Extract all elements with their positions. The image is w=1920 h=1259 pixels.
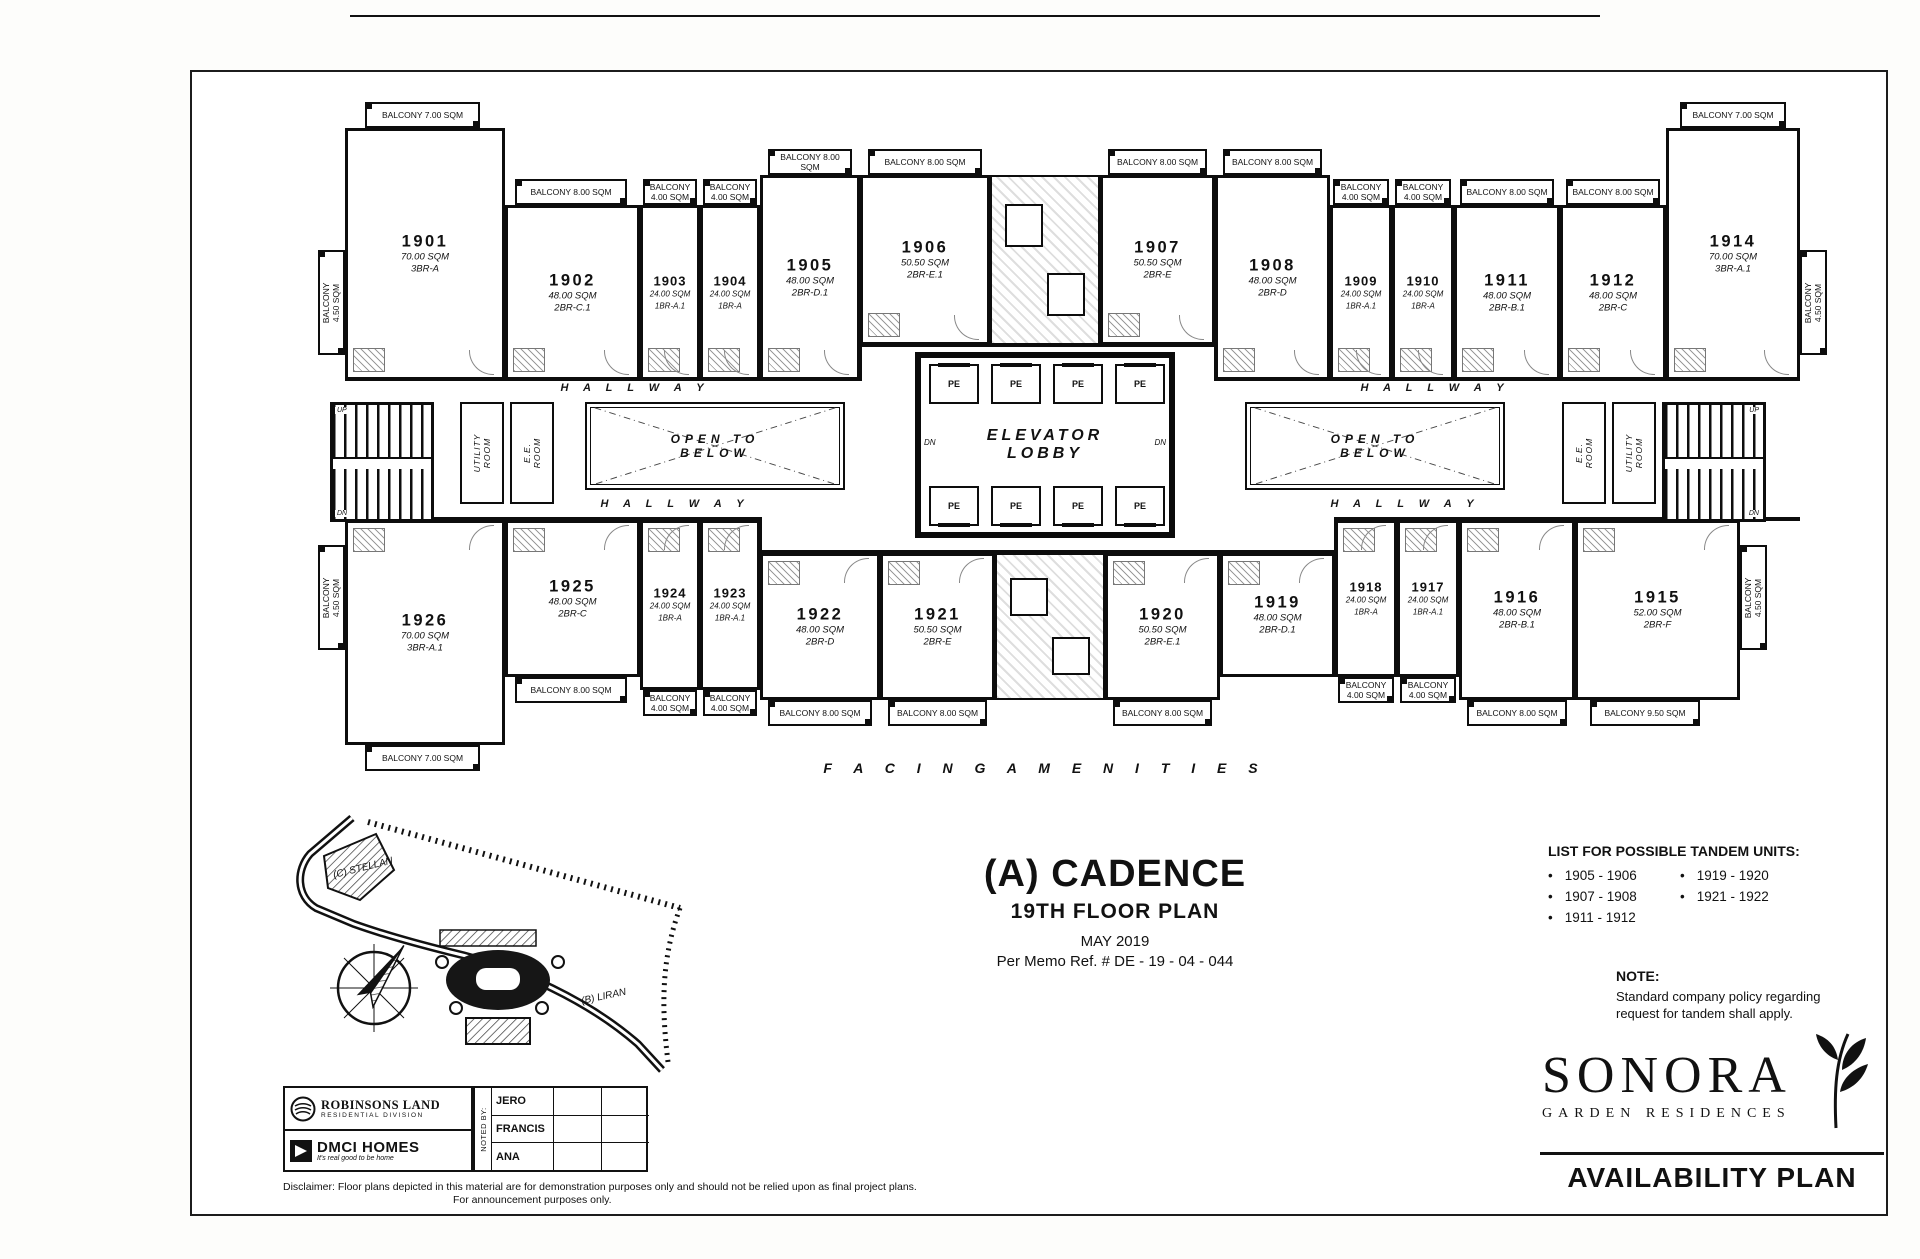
balcony-1917: BALCONY 4.00 SQM: [1400, 677, 1456, 703]
unit-1922: 192248.00 SQM2BR-D: [760, 553, 880, 700]
unit-type: 2BR-E: [883, 636, 992, 648]
unit-area: 48.00 SQM: [1218, 275, 1327, 287]
unit-1914: 191470.00 SQM3BR-A.1: [1666, 128, 1800, 380]
unit-number: 1907: [1103, 239, 1212, 258]
corridor-wall: [345, 377, 860, 381]
balcony-label: BALCONY 4.00 SQM: [706, 693, 754, 713]
balcony-label: BALCONY 4.50 SQM: [322, 282, 342, 322]
note-block: NOTE: Standard company policy regarding …: [1616, 968, 1866, 1022]
unit-1909: 190924.00 SQM1BR-A.1: [1330, 205, 1392, 380]
balcony-label: BALCONY 7.00 SQM: [382, 753, 463, 763]
unit-number: 1917: [1400, 579, 1456, 594]
unit-type: 2BR-D: [763, 636, 877, 648]
corridor-wall: [1215, 377, 1800, 381]
amenity-area: [436, 930, 564, 1044]
balcony-1905: BALCONY 8.00 SQM: [768, 149, 852, 175]
unit-number: 1923: [703, 586, 757, 601]
service-shaft-core: [990, 175, 1100, 345]
disclaimer: Disclaimer: Floor plans depicted in this…: [283, 1181, 943, 1207]
stair-landing: [333, 457, 431, 469]
note-text: Standard company policy regarding reques…: [1616, 988, 1841, 1022]
unit-number: 1909: [1333, 273, 1389, 288]
elevator-cab: PE: [991, 364, 1041, 404]
elevator-cab: PE: [929, 364, 979, 404]
balcony-1909: BALCONY 4.00 SQM: [1333, 179, 1389, 205]
pe-label: PE: [1072, 501, 1084, 511]
unit-area: 48.00 SQM: [1457, 290, 1557, 302]
balcony-label: BALCONY 8.00 SQM: [1232, 157, 1313, 167]
balcony-1903: BALCONY 4.00 SQM: [643, 179, 697, 205]
robinsons-subtitle: RESIDENTIAL DIVISION: [321, 1112, 440, 1119]
balcony-label: BALCONY 8.00 SQM: [1476, 708, 1557, 718]
balcony-1926-side: BALCONY 4.50 SQM: [318, 545, 345, 650]
unit-number: 1920: [1108, 605, 1217, 624]
pe-label: PE: [1010, 501, 1022, 511]
utility-room-label: UTILITY ROOM: [1624, 433, 1644, 473]
unit-type: 1BR-A.1: [1333, 300, 1389, 312]
unit-area: 48.00 SQM: [763, 275, 857, 287]
unit-1926: 192670.00 SQM3BR-A.1: [345, 520, 505, 745]
balcony-label: BALCONY 7.00 SQM: [382, 110, 463, 120]
unit-number: 1922: [763, 605, 877, 624]
hallway-label: H A L L W A Y: [1300, 382, 1570, 394]
unit-type: 2BR-C: [1563, 302, 1663, 314]
unit-number: 1914: [1669, 233, 1797, 252]
robinsons-name: ROBINSONS LAND: [321, 1099, 440, 1112]
unit-1908: 190848.00 SQM2BR-D: [1215, 175, 1330, 380]
unit-1921: 192150.50 SQM2BR-E: [880, 553, 995, 700]
balcony-1924: BALCONY 4.00 SQM: [643, 690, 697, 716]
unit-1916: 191648.00 SQM2BR-B.1: [1459, 520, 1575, 700]
elevator-cab: PE: [1053, 364, 1103, 404]
liran-label: (B) LIRAN: [580, 987, 628, 1007]
noted-name: FRANCIS: [492, 1116, 554, 1143]
balcony-label: BALCONY 8.00 SQM: [779, 708, 860, 718]
unit-1904: 190424.00 SQM1BR-A: [700, 205, 760, 380]
unit-1924: 192424.00 SQM1BR-A: [640, 520, 700, 690]
unit-area: 48.00 SQM: [508, 596, 637, 608]
balcony-label: BALCONY 8.00 SQM: [1572, 187, 1653, 197]
ee-room-left: E.E. ROOM: [510, 402, 554, 504]
hallway-label: H A L L W A Y: [1270, 498, 1540, 510]
title-block: (A) CADENCE 19TH FLOOR PLAN MAY 2019 Per…: [900, 853, 1330, 970]
balcony-label: BALCONY 9.50 SQM: [1604, 708, 1685, 718]
signature-cell: [554, 1143, 602, 1170]
unit-type: 2BR-B.1: [1462, 620, 1572, 632]
scan-artifact-line: [350, 15, 1600, 17]
noted-by-table: NOTED BY: JERO FRANCIS ANA: [473, 1086, 648, 1172]
unit-type: 2BR-D.1: [763, 287, 857, 299]
balcony-label: BALCONY 8.00 SQM: [897, 708, 978, 718]
unit-area: 52.00 SQM: [1578, 608, 1737, 620]
open-to-below-left: OPEN TO BELOW: [585, 402, 845, 490]
utility-room-right: UTILITY ROOM: [1612, 402, 1656, 504]
unit-type: 2BR-B.1: [1457, 302, 1557, 314]
tandem-pair: 1907 - 1908: [1548, 886, 1680, 907]
balcony-1918: BALCONY 4.00 SQM: [1338, 677, 1394, 703]
unit-type: 2BR-F: [1578, 620, 1737, 632]
balcony-label: BALCONY 4.00 SQM: [1336, 182, 1386, 202]
unit-1910: 191024.00 SQM1BR-A: [1392, 205, 1454, 380]
table-row: ANA: [492, 1142, 649, 1170]
plan-memo-ref: Per Memo Ref. # DE - 19 - 04 - 044: [900, 953, 1330, 970]
open-to-below-label: OPEN TO BELOW: [1247, 404, 1503, 488]
ee-room-label: E.E. ROOM: [1574, 433, 1594, 473]
unit-number: 1908: [1218, 256, 1327, 275]
unit-area: 24.00 SQM: [1395, 288, 1451, 300]
corridor-wall: [1214, 343, 1218, 381]
unit-number: 1902: [508, 271, 637, 290]
unit-1925: 192548.00 SQM2BR-C: [505, 520, 640, 677]
unit-number: 1903: [643, 273, 697, 288]
balcony-1914-side: BALCONY 4.50 SQM: [1800, 250, 1827, 355]
unit-1923: 192324.00 SQM1BR-A.1: [700, 520, 760, 690]
unit-number: 1921: [883, 605, 992, 624]
unit-type: 3BR-A: [348, 264, 502, 276]
unit-number: 1901: [348, 233, 502, 252]
unit-1907: 190750.50 SQM2BR-E: [1100, 175, 1215, 345]
unit-1912: 191248.00 SQM2BR-C: [1560, 205, 1666, 380]
facing-amenities-label: F A C I N G A M E N I T I E S: [795, 760, 1295, 776]
unit-1911: 191148.00 SQM2BR-B.1: [1454, 205, 1560, 380]
balcony-label: BALCONY 8.00 SQM: [884, 157, 965, 167]
unit-type: 2BR-E: [1103, 270, 1212, 282]
signature-cell: [602, 1088, 649, 1115]
table-row: FRANCIS: [492, 1115, 649, 1143]
noted-by-label: NOTED BY:: [479, 1107, 488, 1152]
tandem-pair: 1919 - 1920: [1680, 865, 1812, 886]
unit-area: 24.00 SQM: [1333, 288, 1389, 300]
unit-area: 24.00 SQM: [1400, 594, 1456, 606]
balcony-label: BALCONY 8.00 SQM: [771, 152, 849, 172]
unit-number: 1904: [703, 273, 757, 288]
hallway-label: H A L L W A Y: [540, 498, 810, 510]
stairwell-left: UP DN: [330, 402, 434, 522]
pe-label: PE: [1134, 379, 1146, 389]
balcony-1923: BALCONY 4.00 SQM: [703, 690, 757, 716]
tandem-column-1: 1905 - 1906 1907 - 1908 1911 - 1912: [1548, 865, 1680, 928]
unit-area: 48.00 SQM: [1563, 290, 1663, 302]
unit-area: 48.00 SQM: [763, 624, 877, 636]
balcony-label: BALCONY 8.00 SQM: [530, 187, 611, 197]
unit-area: 24.00 SQM: [703, 288, 757, 300]
unit-type: 2BR-E.1: [1108, 636, 1217, 648]
tandem-pair: 1921 - 1922: [1680, 886, 1812, 907]
hallway-label: H A L L W A Y: [500, 382, 770, 394]
unit-area: 24.00 SQM: [643, 601, 697, 613]
note-label: NOTE:: [1616, 968, 1866, 984]
balcony-1901: BALCONY 7.00 SQM: [365, 102, 480, 128]
balcony-1908: BALCONY 8.00 SQM: [1223, 149, 1322, 175]
elevator-cab: PE: [929, 486, 979, 526]
balcony-1914: BALCONY 7.00 SQM: [1680, 102, 1786, 128]
plan-title: (A) CADENCE: [900, 853, 1330, 896]
utility-room-left: UTILITY ROOM: [460, 402, 504, 504]
floor-plan-sheet: { "plan": { "labels": { "hallway": "H A …: [0, 0, 1920, 1259]
elevator-cab: PE: [1115, 486, 1165, 526]
unit-area: 70.00 SQM: [348, 630, 502, 642]
unit-number: 1905: [763, 256, 857, 275]
stairwell-right: UP DN: [1662, 402, 1766, 522]
signature-cell: [602, 1116, 649, 1143]
dmci-square-icon: [290, 1140, 312, 1162]
unit-1920: 192050.50 SQM2BR-E.1: [1105, 553, 1220, 700]
site-location-map: (C) STELLAN (B) LIRAN: [290, 812, 690, 1085]
pe-label: PE: [1072, 379, 1084, 389]
balcony-1915: BALCONY 9.50 SQM: [1590, 700, 1700, 726]
open-to-below-label: OPEN TO BELOW: [587, 404, 843, 488]
availability-plan-label: AVAILABILITY PLAN: [1540, 1162, 1884, 1194]
unit-type: 1BR-A.1: [1400, 606, 1456, 618]
pe-label: PE: [1010, 379, 1022, 389]
unit-1901: 190170.00 SQM3BR-A: [345, 128, 505, 380]
unit-type: 3BR-A.1: [1669, 264, 1797, 276]
unit-number: 1919: [1223, 594, 1332, 613]
elevator-lobby-label: ELEVATOR LOBBY: [921, 427, 1169, 463]
unit-number: 1916: [1462, 589, 1572, 608]
unit-area: 48.00 SQM: [1223, 613, 1332, 625]
unit-type: 1BR-A: [1338, 606, 1394, 618]
ee-room-right: E.E. ROOM: [1562, 402, 1606, 504]
pe-label: PE: [948, 501, 960, 511]
balcony-1902: BALCONY 8.00 SQM: [515, 179, 627, 205]
elevator-cab: PE: [1115, 364, 1165, 404]
signature-cell: [554, 1088, 602, 1115]
balcony-label: BALCONY 4.50 SQM: [1804, 282, 1824, 322]
balcony-1926: BALCONY 7.00 SQM: [365, 745, 480, 771]
balcony-label: BALCONY 4.00 SQM: [646, 182, 694, 202]
balcony-1915-side: BALCONY 4.50 SQM: [1740, 545, 1767, 650]
unit-number: 1915: [1578, 589, 1737, 608]
unit-area: 70.00 SQM: [1669, 252, 1797, 264]
noted-by-label-strip: NOTED BY:: [475, 1088, 492, 1170]
balcony-1916: BALCONY 8.00 SQM: [1467, 700, 1567, 726]
balcony-label: BALCONY 8.00 SQM: [530, 685, 611, 695]
unit-number: 1925: [508, 577, 637, 596]
unit-area: 48.00 SQM: [1462, 608, 1572, 620]
unit-area: 48.00 SQM: [508, 290, 637, 302]
robinsons-land-logo: ROBINSONS LAND RESIDENTIAL DIVISION: [285, 1088, 471, 1129]
unit-type: 1BR-A.1: [703, 613, 757, 625]
unit-1902: 190248.00 SQM2BR-C.1: [505, 205, 640, 380]
corridor-wall: [858, 343, 862, 381]
balcony-1904: BALCONY 4.00 SQM: [703, 179, 757, 205]
unit-type: 2BR-C: [508, 608, 637, 620]
corridor-wall: [758, 517, 762, 554]
unit-1906: 190650.50 SQM2BR-E.1: [860, 175, 990, 345]
unit-type: 1BR-A: [1395, 300, 1451, 312]
noted-name: JERO: [492, 1088, 554, 1115]
balcony-label: BALCONY 4.00 SQM: [1398, 182, 1448, 202]
balcony-1922: BALCONY 8.00 SQM: [768, 700, 872, 726]
balcony-label: BALCONY 4.00 SQM: [1403, 680, 1453, 700]
disclaimer-line1: Disclaimer: Floor plans depicted in this…: [283, 1181, 943, 1194]
north-compass-icon: [330, 940, 418, 1032]
unit-area: 24.00 SQM: [1338, 594, 1394, 606]
dn-label: DN: [924, 438, 936, 447]
unit-type: 2BR-E.1: [863, 270, 987, 282]
dmci-tagline: It's real good to be home: [317, 1155, 420, 1162]
balcony-1921: BALCONY 8.00 SQM: [888, 700, 987, 726]
unit-type: 1BR-A.1: [643, 300, 697, 312]
pe-label: PE: [1134, 501, 1146, 511]
balcony-1911: BALCONY 8.00 SQM: [1460, 179, 1554, 205]
unit-number: 1910: [1395, 273, 1451, 288]
stair-up-label: UP: [335, 407, 349, 414]
pe-label: PE: [948, 379, 960, 389]
developer-logos: ROBINSONS LAND RESIDENTIAL DIVISION DMCI…: [283, 1086, 473, 1172]
balcony-label: BALCONY 8.00 SQM: [1122, 708, 1203, 718]
dmci-homes-logo: DMCI HOMES It's real good to be home: [285, 1129, 471, 1170]
noted-name: ANA: [492, 1143, 554, 1170]
balcony-label: BALCONY 4.50 SQM: [322, 577, 342, 617]
balcony-1907: BALCONY 8.00 SQM: [1108, 149, 1207, 175]
unit-area: 50.50 SQM: [863, 258, 987, 270]
elevator-cab: PE: [1053, 486, 1103, 526]
balcony-label: BALCONY 4.00 SQM: [1341, 680, 1391, 700]
unit-1917: 191724.00 SQM1BR-A.1: [1397, 520, 1459, 677]
unit-number: 1912: [1563, 271, 1663, 290]
balcony-1910: BALCONY 4.00 SQM: [1395, 179, 1451, 205]
unit-area: 24.00 SQM: [643, 288, 697, 300]
tandem-column-2: 1919 - 1920 1921 - 1922: [1680, 865, 1812, 928]
unit-number: 1924: [643, 586, 697, 601]
balcony-1906: BALCONY 8.00 SQM: [868, 149, 982, 175]
unit-type: 3BR-A.1: [348, 642, 502, 654]
utility-room-label: UTILITY ROOM: [472, 433, 492, 473]
elevator-lobby: PE PE PE PE PE PE PE PE ELEVATOR LOBBY D…: [915, 352, 1175, 538]
unit-type: 2BR-C.1: [508, 302, 637, 314]
signature-cell: [554, 1116, 602, 1143]
unit-type: 1BR-A: [703, 300, 757, 312]
unit-area: 50.50 SQM: [883, 624, 992, 636]
robinsons-circle-icon: [290, 1096, 316, 1122]
ee-room-label: E.E. ROOM: [522, 433, 542, 473]
corridor-wall: [1334, 517, 1338, 554]
unit-area: 24.00 SQM: [703, 601, 757, 613]
stair-landing: [1665, 457, 1763, 469]
balcony-1901-side: BALCONY 4.50 SQM: [318, 250, 345, 355]
open-to-below-right: OPEN TO BELOW: [1245, 402, 1505, 490]
balcony-1912: BALCONY 8.00 SQM: [1566, 179, 1660, 205]
unit-number: 1906: [863, 239, 987, 258]
unit-area: 70.00 SQM: [348, 252, 502, 264]
dmci-name: DMCI HOMES: [317, 1140, 420, 1155]
disclaimer-line2: For announcement purposes only.: [453, 1194, 943, 1207]
stair-up-label: UP: [1747, 407, 1761, 414]
balcony-label: BALCONY 4.50 SQM: [1744, 577, 1764, 617]
balcony-label: BALCONY 7.00 SQM: [1692, 110, 1773, 120]
unit-1919: 191948.00 SQM2BR-D.1: [1220, 553, 1335, 677]
balcony-1920: BALCONY 8.00 SQM: [1113, 700, 1212, 726]
unit-area: 50.50 SQM: [1108, 624, 1217, 636]
unit-label: 190170.00 SQM3BR-A: [348, 233, 502, 276]
balcony-label: BALCONY 8.00 SQM: [1117, 157, 1198, 167]
tandem-pair: 1911 - 1912: [1548, 907, 1680, 928]
divider-line: [1540, 1152, 1884, 1155]
balcony-label: BALCONY 4.00 SQM: [706, 182, 754, 202]
unit-1918: 191824.00 SQM1BR-A: [1335, 520, 1397, 677]
unit-type: 1BR-A: [643, 613, 697, 625]
tandem-list-header: LIST FOR POSSIBLE TANDEM UNITS:: [1548, 843, 1838, 859]
service-shaft-core: [995, 553, 1105, 700]
unit-type: 2BR-D: [1218, 287, 1327, 299]
unit-1905: 190548.00 SQM2BR-D.1: [760, 175, 860, 380]
unit-number: 1911: [1457, 271, 1557, 290]
balcony-label: BALCONY 4.00 SQM: [646, 693, 694, 713]
unit-number: 1918: [1338, 579, 1394, 594]
elevator-cab: PE: [991, 486, 1041, 526]
unit-1903: 190324.00 SQM1BR-A.1: [640, 205, 700, 380]
signature-cell: [602, 1143, 649, 1170]
stair-dn-label: DN: [1747, 510, 1761, 517]
dn-label: DN: [1154, 438, 1166, 447]
unit-number: 1926: [348, 611, 502, 630]
plan-date: MAY 2019: [900, 933, 1330, 950]
leaf-icon: [1796, 1030, 1876, 1130]
table-row: JERO: [492, 1088, 649, 1115]
balcony-label: BALCONY 8.00 SQM: [1466, 187, 1547, 197]
unit-1915: 191552.00 SQM2BR-F: [1575, 520, 1740, 700]
tandem-units-list: LIST FOR POSSIBLE TANDEM UNITS: 1905 - 1…: [1548, 843, 1838, 928]
unit-area: 50.50 SQM: [1103, 258, 1212, 270]
plan-subtitle: 19TH FLOOR PLAN: [900, 900, 1330, 924]
balcony-1925: BALCONY 8.00 SQM: [515, 677, 627, 703]
stair-dn-label: DN: [335, 510, 349, 517]
tandem-pair: 1905 - 1906: [1548, 865, 1680, 886]
unit-type: 2BR-D.1: [1223, 625, 1332, 637]
liran-building-footprint: [466, 1018, 530, 1044]
